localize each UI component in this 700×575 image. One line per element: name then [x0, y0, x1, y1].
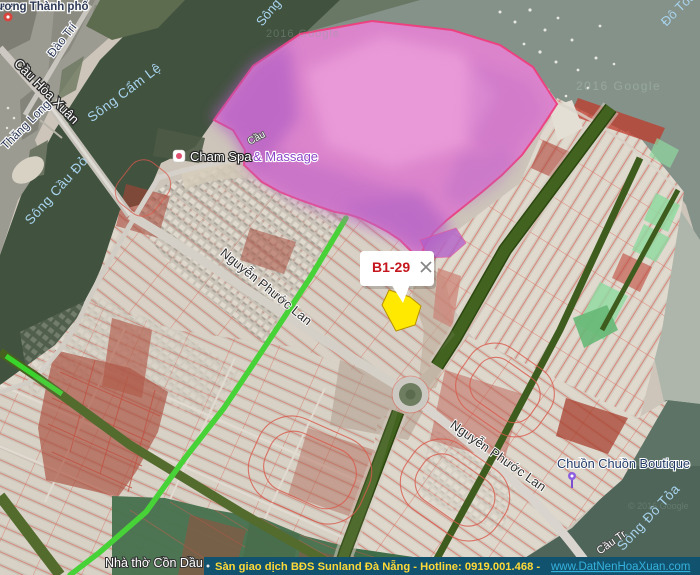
svg-text:Cham Spa: Cham Spa	[190, 149, 252, 164]
svg-text:Sàn giao dịch BĐS Sunland Đà N: Sàn giao dịch BĐS Sunland Đà Nẵng - Hotl…	[215, 560, 540, 573]
svg-text:Chuồn Chuồn Boutique: Chuồn Chuồn Boutique	[557, 456, 690, 471]
svg-text:www.DatNenHoaXuan.com: www.DatNenHoaXuan.com	[550, 561, 690, 573]
svg-text:ương Thành phố: ương Thành phố	[0, 1, 89, 13]
svg-text:2016 Google: 2016 Google	[266, 28, 340, 40]
svg-text:Nhà thờ Cồn Dầu: Nhà thờ Cồn Dầu	[105, 556, 203, 570]
svg-text:& Massage: & Massage	[253, 149, 318, 164]
svg-text:2016 Google: 2016 Google	[576, 79, 661, 93]
svg-text:B1-29: B1-29	[372, 259, 410, 275]
